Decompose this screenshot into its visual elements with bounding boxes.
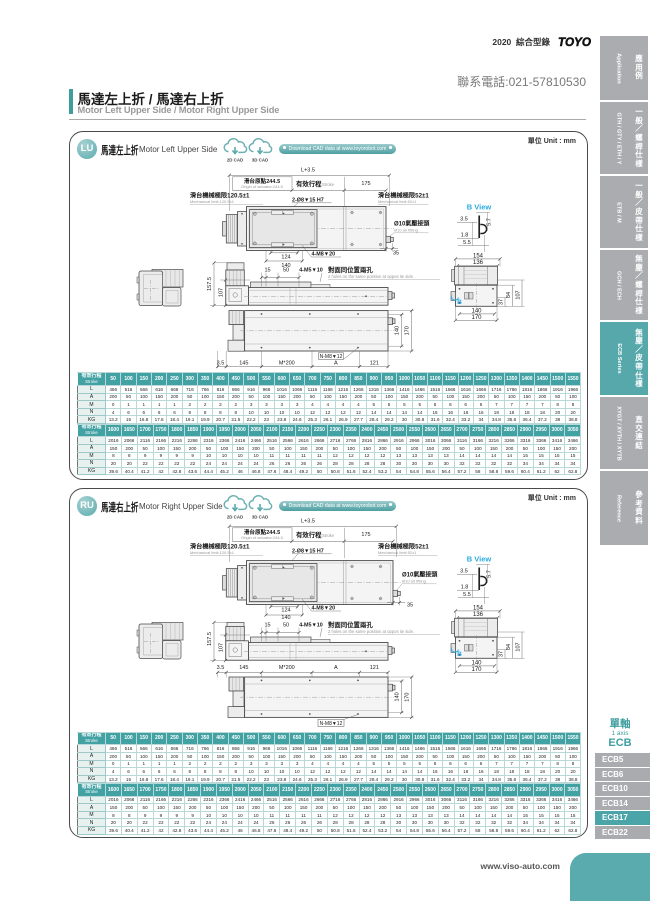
svg-text:4-M5▼10: 4-M5▼10 [299, 623, 323, 629]
svg-text:50: 50 [283, 623, 289, 629]
svg-text:170: 170 [471, 315, 482, 321]
svg-text:A: A [334, 665, 338, 671]
svg-text:Ø10 air fitting: Ø10 air fitting [402, 578, 426, 583]
svg-text:M*200: M*200 [279, 665, 295, 671]
svg-text:L+3.5: L+3.5 [301, 519, 315, 525]
svg-text:3.5: 3.5 [217, 361, 225, 367]
svg-text:2-Ø8▼15 H7: 2-Ø8▼15 H7 [292, 197, 324, 203]
svg-text:170: 170 [405, 693, 411, 702]
svg-text:84: 84 [506, 292, 512, 298]
svg-text:15: 15 [264, 623, 270, 629]
svg-text:Mechanical limit:52±1: Mechanical limit:52±1 [378, 199, 417, 204]
svg-text:Mechanical limit:120.5±1: Mechanical limit:120.5±1 [190, 550, 235, 555]
svg-text:154: 154 [473, 253, 484, 259]
svg-text:140: 140 [395, 692, 401, 701]
svg-text:2 holes on the same position a: 2 holes on the same position at oppos it… [328, 629, 414, 634]
svg-text:35: 35 [393, 251, 399, 257]
svg-text:2 holes on the same position a: 2 holes on the same position at oppos it… [328, 274, 414, 279]
svg-text:175: 175 [361, 181, 370, 187]
svg-text:107: 107 [219, 643, 225, 652]
svg-text:Stroke: Stroke [322, 182, 335, 187]
svg-text:4-M8▼20: 4-M8▼20 [312, 252, 336, 258]
svg-text:3.5: 3.5 [460, 217, 468, 223]
svg-text:136: 136 [473, 612, 484, 618]
svg-text:Stroke: Stroke [322, 533, 335, 538]
svg-text:107: 107 [219, 288, 225, 297]
svg-text:140: 140 [471, 660, 482, 666]
svg-text:Ø10氣壓接頭: Ø10氣壓接頭 [394, 219, 430, 227]
svg-text:50: 50 [283, 268, 289, 274]
svg-text:121: 121 [370, 361, 379, 367]
svg-text:157.5: 157.5 [207, 277, 213, 291]
svg-text:Ø10氣壓接頭: Ø10氣壓接頭 [402, 570, 438, 578]
svg-text:Mechanical limit:120.5±1: Mechanical limit:120.5±1 [190, 199, 235, 204]
svg-text:145: 145 [239, 361, 248, 367]
svg-text:B: B [457, 651, 462, 658]
svg-text:A: A [334, 361, 338, 367]
svg-text:124: 124 [281, 255, 290, 261]
svg-text:對面同位置兩孔: 對面同位置兩孔 [328, 265, 373, 274]
svg-text:B View: B View [467, 203, 492, 212]
svg-text:2-Ø8▼15 H7: 2-Ø8▼15 H7 [292, 548, 324, 554]
svg-text:84: 84 [506, 644, 512, 650]
svg-text:3.5: 3.5 [217, 665, 225, 671]
svg-text:N-M8▼12: N-M8▼12 [320, 354, 343, 360]
svg-text:37: 37 [498, 651, 504, 657]
svg-text:3.5: 3.5 [460, 569, 468, 575]
svg-text:35: 35 [407, 603, 413, 609]
svg-text:4-M5▼10: 4-M5▼10 [299, 268, 323, 274]
svg-text:對面同位置兩孔: 對面同位置兩孔 [328, 620, 373, 629]
svg-text:有效行程: 有效行程 [296, 179, 322, 188]
svg-text:140: 140 [281, 615, 290, 621]
svg-text:5.5: 5.5 [463, 240, 471, 246]
svg-text:L+3.5: L+3.5 [301, 168, 315, 174]
svg-text:TOYO: TOYO [558, 37, 591, 49]
svg-text:175: 175 [361, 532, 370, 538]
svg-text:5.5: 5.5 [463, 592, 471, 598]
svg-text:140: 140 [471, 308, 482, 314]
svg-text:37: 37 [498, 299, 504, 305]
svg-text:B View: B View [467, 555, 492, 564]
svg-text:154: 154 [473, 605, 484, 611]
svg-text:1.8: 1.8 [461, 585, 469, 591]
svg-text:107: 107 [515, 642, 521, 651]
svg-text:4-M8▼20: 4-M8▼20 [312, 606, 336, 612]
svg-text:Origin of actuator:244.5: Origin of actuator:244.5 [241, 535, 284, 540]
svg-text:157.5: 157.5 [207, 632, 213, 646]
svg-text:170: 170 [471, 667, 482, 673]
svg-text:M*200: M*200 [279, 361, 295, 367]
svg-text:Mechanical limit:52±1: Mechanical limit:52±1 [378, 550, 417, 555]
svg-text:有效行程: 有效行程 [296, 530, 322, 539]
svg-text:15: 15 [264, 268, 270, 274]
svg-text:170: 170 [405, 326, 411, 335]
svg-text:140: 140 [395, 326, 401, 335]
svg-text:1.8: 1.8 [461, 233, 469, 239]
svg-text:107: 107 [515, 290, 521, 299]
svg-text:N-M8▼12: N-M8▼12 [320, 721, 343, 727]
svg-text:136: 136 [473, 260, 484, 266]
svg-text:Ø10 air fitting: Ø10 air fitting [394, 227, 418, 232]
svg-text:121: 121 [370, 665, 379, 671]
svg-text:124: 124 [281, 607, 290, 613]
svg-text:Origin of actuator:244.5: Origin of actuator:244.5 [241, 184, 284, 189]
svg-text:145: 145 [239, 665, 248, 671]
svg-text:B: B [457, 299, 462, 306]
